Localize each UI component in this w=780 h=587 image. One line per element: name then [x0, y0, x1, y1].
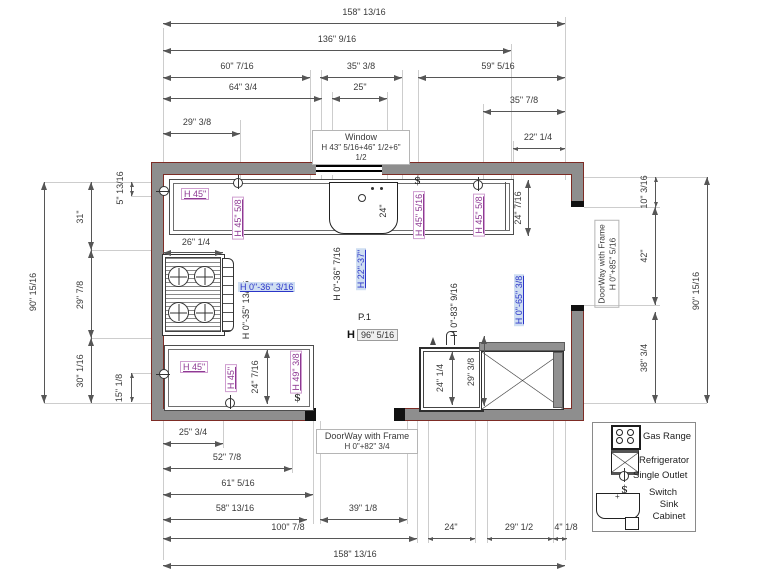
dim-line [91, 338, 92, 403]
room-point-label: P.1 [358, 312, 371, 323]
faucet-mark-icon: + [615, 492, 620, 501]
label-h22-37[interactable]: H 22"-37" [356, 248, 366, 290]
faucet-handle-icon [380, 187, 383, 190]
dim-line [332, 98, 387, 99]
dim-top-60: 60" 7/16 [220, 61, 253, 71]
dim-line [163, 98, 322, 99]
dim-bottom-52: 52" 7/8 [213, 452, 241, 462]
burner-icon [627, 429, 634, 436]
label-h49-38[interactable]: H 49" 3/8 [290, 350, 302, 393]
dim-left-30: 30" 1/16 [75, 354, 85, 387]
counter-top-end-panel [505, 182, 506, 230]
label-h45-top-left[interactable]: H 45" [181, 188, 209, 200]
dim-line [163, 252, 223, 253]
doorway-right-height: H 0"+85" 5/16 [607, 224, 618, 304]
window-height: H 43" 5/16+46" 1/2+6" 1/2 [315, 143, 407, 163]
doorway-bottom-height: H 0"+82" 3/4 [319, 442, 415, 452]
dim-line [131, 373, 132, 402]
ext-line [44, 182, 163, 183]
dim-line [655, 207, 656, 305]
dim-line [320, 77, 402, 78]
ext-line [428, 420, 429, 543]
dim-line [163, 565, 565, 566]
dim-line [267, 350, 268, 404]
dim-line [484, 336, 485, 406]
single-outlet-icon [619, 471, 629, 481]
refrigerator-top-panel [479, 342, 565, 351]
dim-top-136: 136" 9/16 [318, 34, 356, 44]
label-h0-65-38[interactable]: H 0"-65" 3/8 [514, 274, 524, 326]
dim-line [320, 519, 407, 520]
dim-bottom-100: 100" 7/8 [271, 522, 304, 532]
label-h45-bottom-left-rot[interactable]: H 45" [225, 364, 237, 392]
dim-line [163, 133, 240, 134]
burner-icon [194, 302, 215, 323]
label-h45-58-top-right[interactable]: H 45" 5/8 [473, 193, 485, 236]
burner-icon [168, 266, 189, 287]
ext-line [223, 420, 224, 448]
dim-line [163, 77, 310, 78]
dim-top-35b: 35" 7/8 [510, 95, 538, 105]
doorway-right-jamb-bottom [571, 305, 584, 311]
window-label: Window H 43" 5/16+46" 1/2+6" 1/2 [312, 130, 410, 165]
single-outlet-icon[interactable] [159, 369, 169, 379]
dim-top-59: 59" 5/16 [481, 61, 514, 71]
dim-line [513, 148, 565, 149]
doorway-right-opening[interactable] [571, 207, 584, 305]
single-outlet-icon[interactable] [473, 180, 483, 190]
label-h0-36-716[interactable]: H 0"-36" 7/16 [332, 247, 342, 300]
ext-line [313, 420, 314, 524]
dim-bottom-29: 29" 1/2 [505, 522, 533, 532]
single-outlet-icon[interactable] [233, 178, 243, 188]
dim-line [131, 182, 132, 196]
dim-line [655, 312, 656, 403]
supply-arrow-icon [430, 334, 436, 345]
sink-cabinet-base-icon [625, 517, 639, 530]
dim-line [163, 494, 313, 495]
ext-line [565, 17, 566, 180]
legend-switch: Switch [649, 487, 677, 498]
dim-line [163, 468, 292, 469]
dim-line [707, 177, 708, 403]
burner-icon [616, 429, 623, 436]
dim-bottom-24: 24" [444, 522, 457, 532]
ext-line [487, 420, 488, 543]
dim-bottom-4: 4" 1/8 [554, 522, 577, 532]
burner-icon [194, 266, 215, 287]
dim-left-total: 90" 15/16 [28, 273, 38, 311]
room-height-field[interactable]: H 96" 5/16 [347, 329, 398, 341]
dim-line [91, 250, 92, 338]
dim-left-5: 5" 13/16 [115, 171, 125, 204]
legend-sink-cabinet: Sink Cabinet [645, 499, 693, 524]
dim-line [44, 182, 45, 403]
label-h0-36-316[interactable]: H 0"-36" 3/16 [238, 282, 295, 292]
ext-line [292, 420, 293, 473]
dim-left-15: 15" 1/8 [114, 374, 124, 402]
dim-top-29: 29" 3/8 [183, 117, 211, 127]
dim-top-22: 22" 1/4 [524, 132, 552, 142]
dim-line [163, 23, 565, 24]
dim-left-31: 31" [75, 210, 85, 223]
label-h45-516-top-right[interactable]: H 45" 5/16 [413, 191, 425, 239]
dim-right-total: 90" 15/16 [691, 272, 701, 310]
dim-left-29: 29" 7/8 [75, 281, 85, 309]
single-outlet-icon[interactable] [159, 186, 169, 196]
dim-stove-width: 26" 1/4 [182, 237, 210, 247]
label-h45-58-top-left[interactable]: H 45" 5/8 [232, 196, 244, 239]
single-outlet-icon[interactable] [225, 398, 235, 408]
label-h45-bottom-left[interactable]: H 45" [180, 361, 208, 373]
dim-bottom-total: 158" 13/16 [333, 549, 376, 559]
dim-line [483, 111, 565, 112]
dim-line [487, 538, 553, 539]
dim-top-total: 158" 13/16 [342, 7, 385, 17]
dim-line [528, 180, 529, 236]
refrigerator-side-panel [553, 352, 563, 408]
switch-icon[interactable]: $ [414, 174, 421, 187]
height-prefix: H [347, 329, 355, 341]
window-title: Window [315, 132, 407, 143]
doorway-bottom-label: DoorWay with Frame H 0"+82" 3/4 [316, 429, 418, 454]
dim-bottom-39: 39" 1/8 [349, 503, 377, 513]
dim-right-10: 10" 3/16 [639, 175, 649, 208]
dim-line [163, 443, 223, 444]
room-height-value[interactable]: 96" 5/16 [357, 329, 398, 341]
dim-line [655, 177, 656, 207]
doorway-bottom-opening[interactable] [316, 408, 394, 421]
dim-top-35a: 35" 3/8 [347, 61, 375, 71]
gas-range-knobs [222, 258, 234, 332]
burner-icon [168, 302, 189, 323]
dim-cabinet-depth: 24" 1/4 [435, 364, 445, 392]
dim-line [418, 77, 565, 78]
dim-line [163, 519, 307, 520]
legend-gas-range: Gas Range [643, 431, 691, 442]
dim-line [91, 182, 92, 250]
gas-range-icon [611, 425, 641, 450]
drain-icon [358, 194, 366, 202]
dim-bottom-61: 61" 5/16 [221, 478, 254, 488]
faucet-handle-icon [371, 187, 374, 190]
label-h0-83-916[interactable]: H 0"-83" 9/16 [449, 283, 459, 336]
burner-icon [627, 437, 634, 444]
dim-bottom-58: 58" 13/16 [216, 503, 254, 513]
dim-counter-bl-depth: 24" 7/16 [250, 360, 260, 393]
dim-right-42: 42" [639, 249, 649, 262]
ext-line [475, 420, 476, 543]
ext-line [583, 403, 707, 404]
refrigerator[interactable] [481, 351, 564, 410]
dim-fridge-depth: 29" 3/8 [466, 358, 476, 386]
ext-line [44, 403, 163, 404]
sink-cabinet-icon: + [596, 493, 640, 519]
doorway-bottom-jamb-right [394, 408, 405, 421]
burner-icon [616, 437, 623, 444]
dim-line [452, 352, 453, 405]
dim-counter-tr-depth: 24" 7/16 [513, 191, 523, 224]
floor-plan-canvas: 24" $ $ 158" 13/16 136" 9/16 60" 7/16 35… [0, 0, 780, 587]
dim-top-64: 64" 3/4 [229, 82, 257, 92]
dim-line [553, 538, 567, 539]
doorway-right-title: DoorWay with Frame [596, 224, 607, 304]
dim-right-38: 38" 3/4 [639, 344, 649, 372]
dim-line [428, 538, 475, 539]
legend-refrigerator: Refrigerator [639, 455, 689, 466]
dim-top-25: 25" [353, 82, 366, 92]
dim-line [163, 50, 511, 51]
doorway-right-label: DoorWay with Frame H 0"+85" 5/16 [594, 220, 619, 308]
sink-depth-label: 24" [378, 204, 388, 217]
dim-line [163, 538, 417, 539]
doorway-right-jamb-top [571, 201, 584, 207]
doorway-bottom-title: DoorWay with Frame [319, 431, 415, 442]
dim-bottom-25: 25" 3/4 [179, 427, 207, 437]
legend-single-outlet: Single Outlet [633, 470, 687, 481]
